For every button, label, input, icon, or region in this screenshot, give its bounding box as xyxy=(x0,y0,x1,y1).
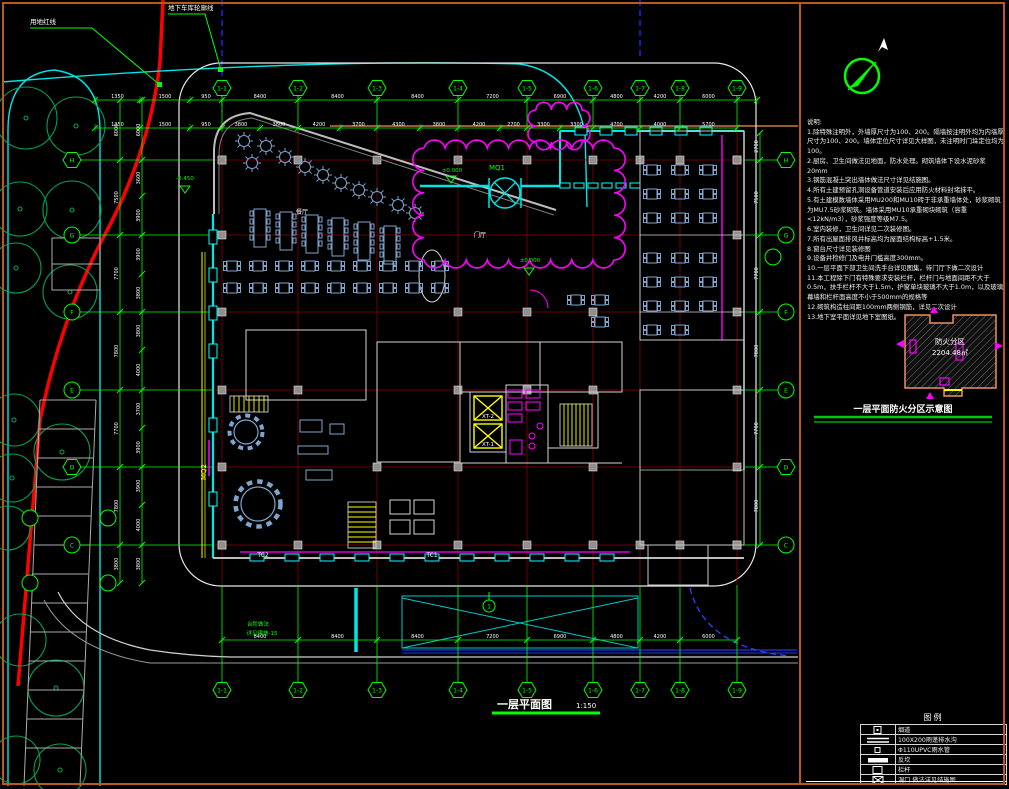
cad-sheet: 1350150095084008400840072006900480042006… xyxy=(0,0,1009,789)
sheet-border xyxy=(2,2,1005,785)
panel-divider xyxy=(799,2,801,785)
